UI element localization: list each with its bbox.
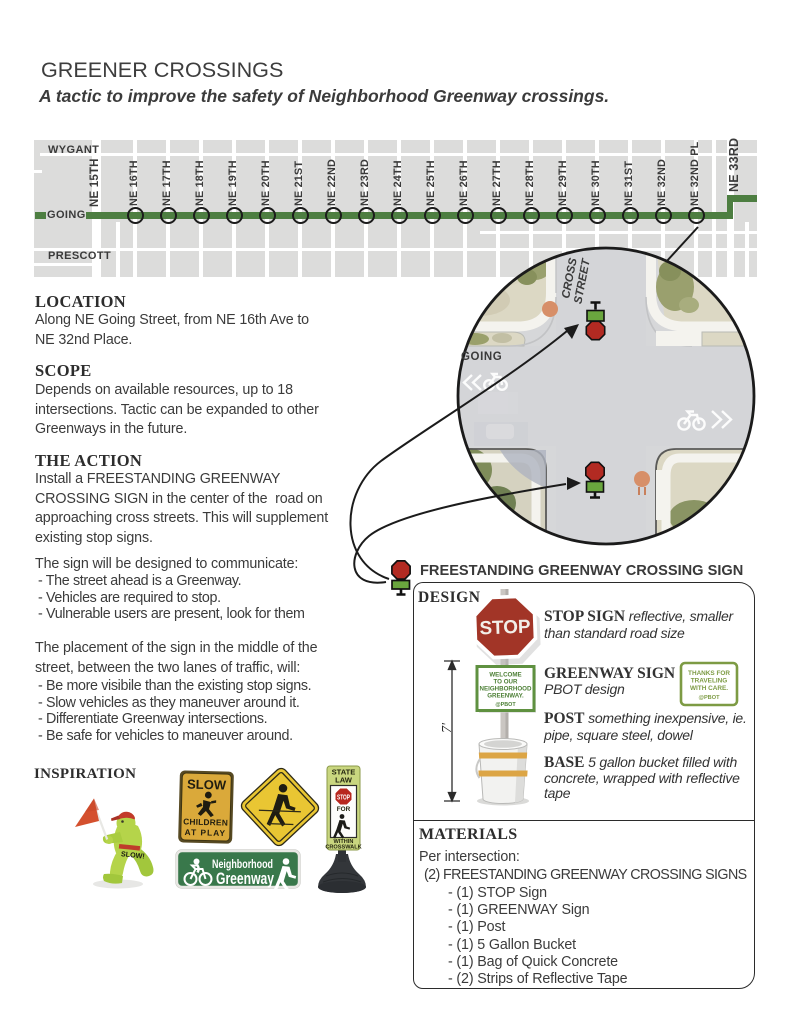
- svg-text:STATE: STATE: [332, 768, 356, 777]
- svg-text:SLOW!: SLOW!: [121, 849, 146, 860]
- svg-text:WITHIN: WITHIN: [334, 839, 354, 845]
- svg-text:LAW: LAW: [335, 776, 353, 785]
- svg-text:SLOW: SLOW: [187, 777, 227, 793]
- svg-text:STOP: STOP: [337, 795, 350, 802]
- svg-text:FOR: FOR: [337, 806, 351, 813]
- svg-text:CROSSWALK: CROSSWALK: [325, 845, 361, 851]
- svg-text:CHILDREN: CHILDREN: [183, 816, 228, 827]
- svg-text:AT PLAY: AT PLAY: [184, 827, 226, 838]
- svg-text:Greenway: Greenway: [216, 870, 275, 888]
- svg-text:GOING: GOING: [461, 351, 502, 363]
- svg-text:Neighborhood: Neighborhood: [212, 859, 273, 871]
